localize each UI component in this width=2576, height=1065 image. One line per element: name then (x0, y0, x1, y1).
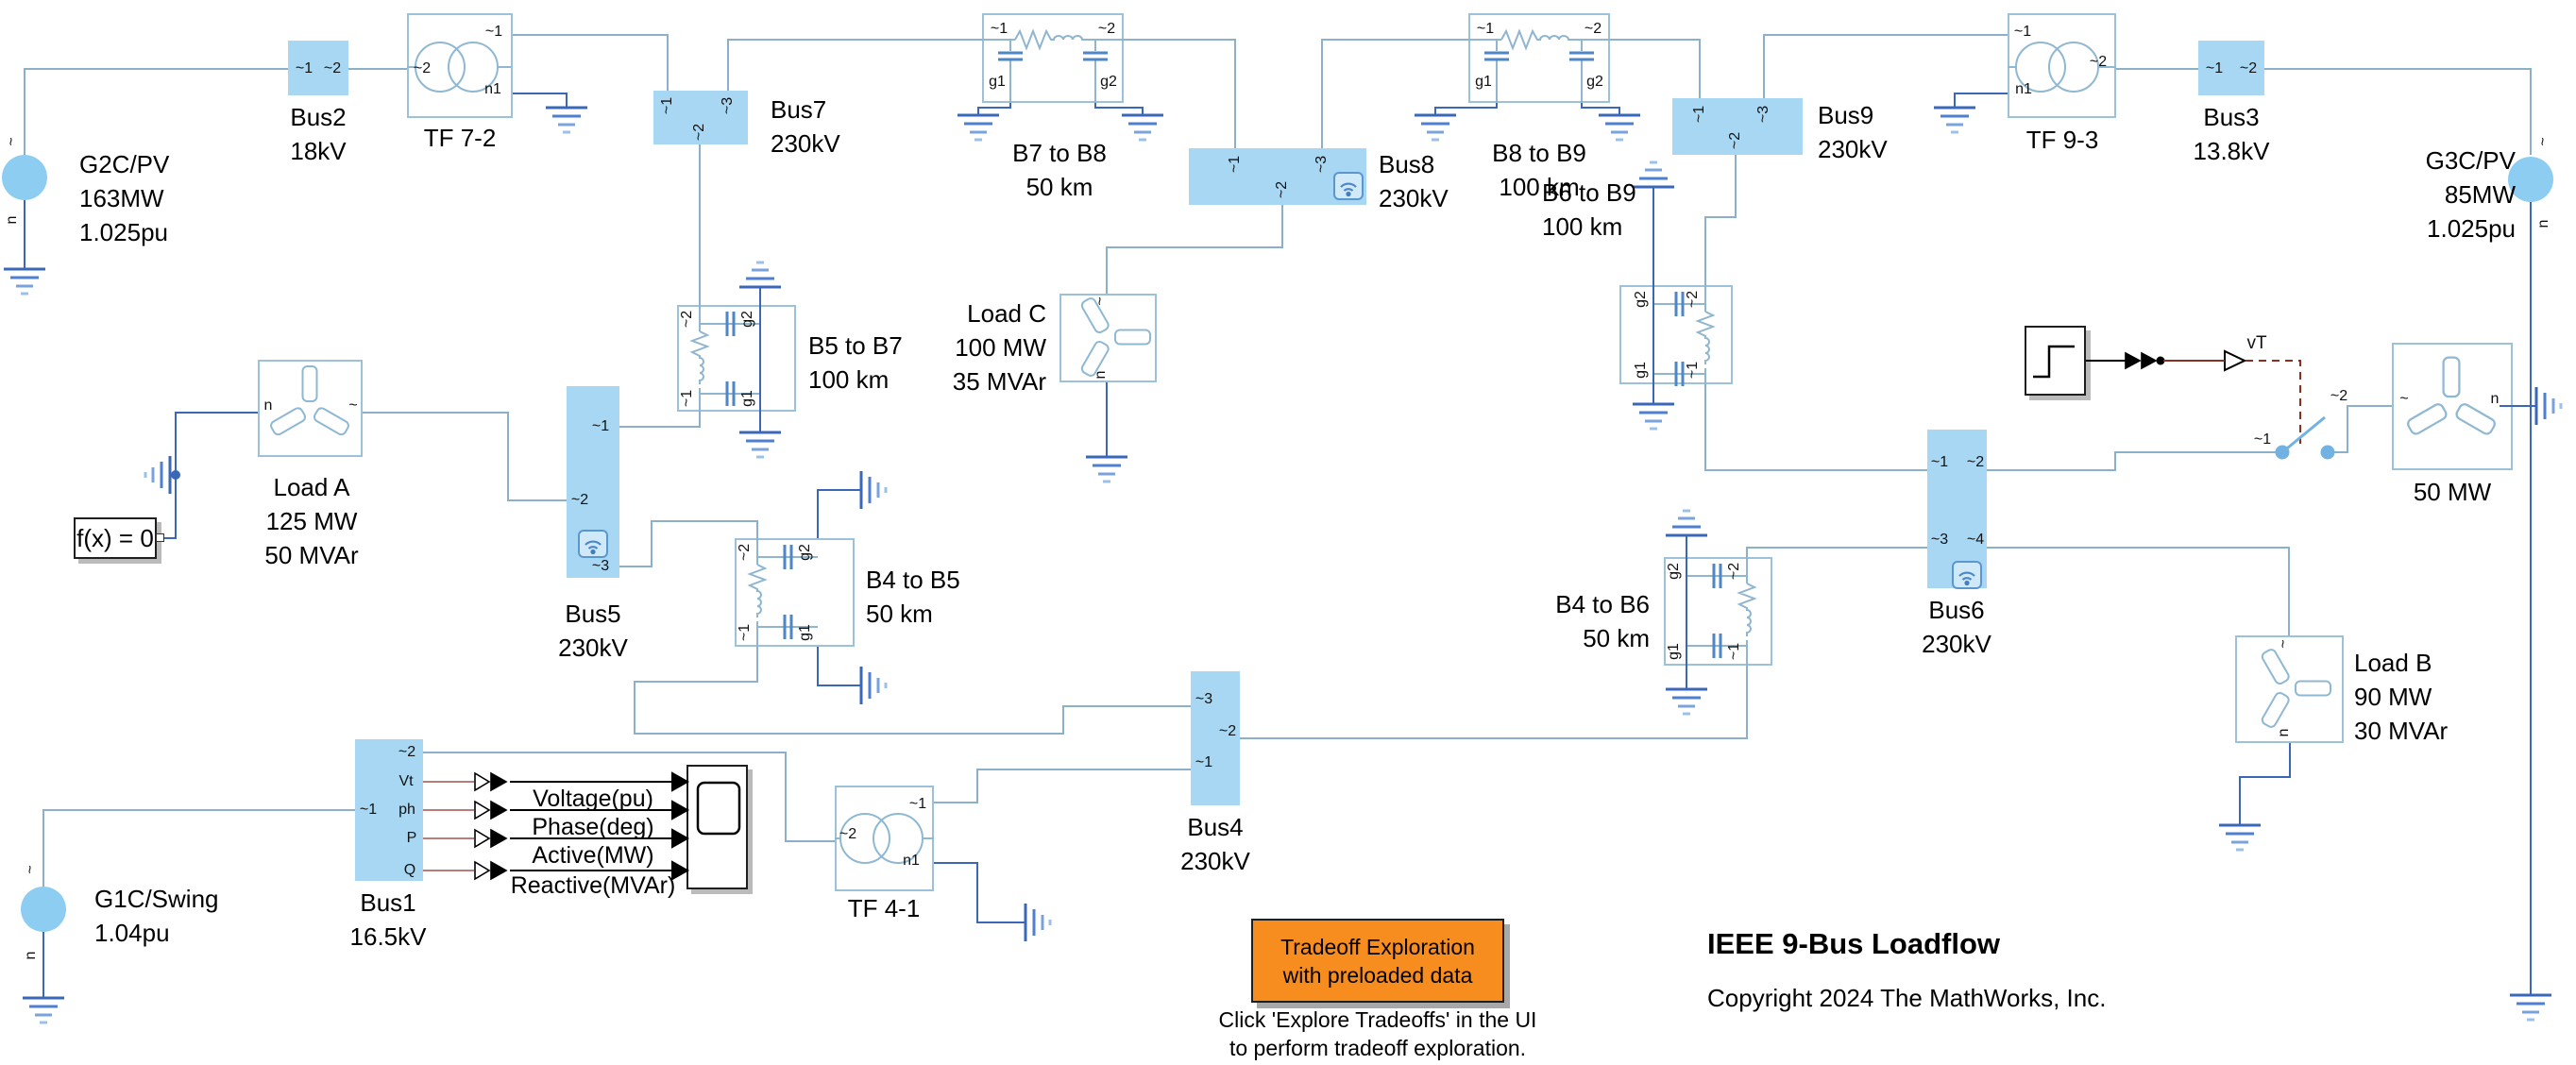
ground-icon (1599, 115, 1640, 140)
ground-icon (23, 998, 64, 1023)
b5b7-port-2: ~2 (679, 311, 696, 328)
tradeoff-note-line1: Click 'Explore Tradeoffs' in the UI (1219, 1006, 1537, 1034)
load-b-label: Load B90 MW30 MVAr (2354, 646, 2448, 748)
b8b9-port-2: ~2 (1585, 21, 1602, 38)
ground-icon (2219, 825, 2261, 850)
bus7-port-3: ~3 (720, 97, 737, 114)
switch-port-1: ~1 (2254, 431, 2271, 448)
b6b9-port-g2: g2 (1633, 291, 1650, 308)
g3c-label: G3C/PV85MW1.025pu (2327, 144, 2516, 245)
bus4-port-1: ~1 (1195, 754, 1212, 771)
b4b5-port-2: ~2 (737, 544, 754, 561)
bus2-port-1: ~1 (296, 60, 313, 77)
load-a-port-n: n (264, 397, 273, 414)
b7b8-label: B7 to B850 km (1012, 136, 1107, 204)
load-a-fan-icon (269, 366, 349, 436)
bus3-port-1: ~1 (2206, 60, 2223, 77)
ground-icon (2536, 387, 2561, 425)
load-b-port-ac: ~ (2276, 639, 2293, 648)
bus3-label: Bus313.8kV (2194, 100, 2270, 168)
ground-icon (145, 456, 170, 494)
b8b9-port-1: ~1 (1477, 21, 1494, 38)
ground-icon (1633, 404, 1674, 429)
tf72-port-n1: n1 (484, 81, 501, 98)
tf41-port-n1: n1 (903, 853, 920, 870)
junction-dot (171, 470, 180, 480)
bus6-port-1: ~1 (1931, 454, 1948, 471)
bus9-port-3: ~3 (1755, 106, 1772, 123)
signal-label-voltage: Voltage(pu) (533, 786, 653, 812)
ground-icon (739, 262, 781, 287)
ground-icon (546, 108, 587, 132)
signal-label-active: Active(MW) (532, 842, 653, 869)
signal-wires[interactable] (510, 361, 2126, 879)
ground-icon (739, 432, 781, 457)
bus4-label: Bus4230kV (1180, 810, 1250, 878)
bus4-port-3: ~3 (1195, 691, 1212, 708)
tf93-port-2: ~2 (2090, 54, 2107, 71)
bus8-wifi-icon (1334, 173, 1363, 199)
b5b7-port-g2: g2 (739, 311, 756, 328)
bus9-port-1: ~1 (1691, 106, 1708, 123)
bus6-port-3: ~3 (1931, 532, 1948, 549)
g1c-generator-icon (21, 887, 66, 932)
bus8-port-3: ~3 (1313, 156, 1330, 173)
bus1-port-p: P (407, 830, 417, 847)
ground-icon (861, 471, 886, 509)
load-50mw-label: 50 MW (2414, 475, 2491, 509)
g2c-label: G2C/PV163MW1.025pu (79, 147, 169, 249)
ground-icon (1666, 689, 1707, 714)
tradeoff-note-line2: to perform tradeoff exploration. (1229, 1035, 1526, 1062)
bus7-port-2: ~2 (691, 124, 708, 141)
load-c-port-n: n (1093, 371, 1110, 380)
bus1-port-ph: ph (398, 802, 415, 819)
b4b6-label: B4 to B650 km (1461, 587, 1650, 655)
b4b6-port-g2: g2 (1666, 563, 1683, 580)
load-a-port-ac: ~ (348, 397, 357, 414)
ground-icon (4, 269, 45, 294)
b7b8-port-2: ~2 (1098, 21, 1115, 38)
b4b6-port-g1: g1 (1666, 643, 1683, 660)
signal-label-reactive: Reactive(MVAr) (511, 872, 676, 899)
bus4-port-2: ~2 (1219, 723, 1236, 740)
g1c-port-ac: ~ (23, 865, 40, 873)
b4b5-label: B4 to B550 km (866, 563, 960, 631)
bus-measurement-icons (579, 173, 1981, 588)
bus6-label: Bus6230kV (1922, 593, 1991, 661)
load-b-fan-icon (2261, 648, 2330, 728)
simulink-model-canvas: f(x) = 0 Tradeoff Exploration with prelo… (0, 0, 2576, 1065)
load-c-port-ac: ~ (1093, 296, 1110, 305)
bus2-port-2: ~2 (324, 60, 341, 77)
b6b9-port-2: ~2 (1685, 291, 1702, 308)
bus8-port-1: ~1 (1227, 156, 1244, 173)
tf93-port-n1: n1 (2015, 81, 2032, 98)
bus1-label: Bus116.5kV (350, 886, 427, 954)
b7b8-port-1: ~1 (991, 21, 1008, 38)
ground-icon (1086, 457, 1127, 482)
tf41-port-2: ~2 (839, 826, 856, 843)
b4b6-port-2: ~2 (1726, 563, 1743, 580)
b4b5-port-g2: g2 (797, 544, 814, 561)
tf72-port-2: ~2 (414, 60, 431, 77)
load50-port-ac: ~ (2399, 391, 2408, 408)
b8b9-port-g2: g2 (1586, 74, 1603, 91)
tf93-port-1: ~1 (2014, 24, 2031, 41)
g2c-generator-icon (2, 155, 47, 200)
tf41-label: TF 4-1 (848, 891, 921, 925)
breaker-switch[interactable] (2276, 417, 2335, 460)
b4b6-port-1: ~1 (1726, 643, 1743, 660)
g2c-port-n: n (4, 216, 21, 225)
bus8-port-2: ~2 (1274, 181, 1291, 198)
load-50mw-fan-icon (2406, 358, 2497, 436)
bus1-port-vt: Vt (398, 773, 413, 790)
signal-label-phase: Phase(deg) (532, 814, 653, 840)
bus1-port-2: ~2 (398, 744, 415, 761)
bus6-port-4: ~4 (1967, 532, 1984, 549)
tf41-port-1: ~1 (909, 796, 926, 813)
load-a-label: Load A125 MW50 MVAr (264, 470, 358, 572)
ground-icon (1666, 511, 1707, 535)
load-b-port-n: n (2276, 729, 2293, 737)
load-c-label: Load C100 MW35 MVAr (857, 296, 1046, 398)
b7b8-port-g1: g1 (989, 74, 1006, 91)
bus5-port-3: ~3 (592, 558, 609, 575)
model-title: IEEE 9-Bus Loadflow (1707, 927, 2000, 961)
g2c-port-ac: ~ (4, 137, 21, 145)
bus3-port-2: ~2 (2240, 60, 2257, 77)
load50-port-n: n (2491, 391, 2500, 408)
bus5-port-1: ~1 (592, 418, 609, 435)
tf72-label: TF 7-2 (424, 121, 497, 155)
b6b9-port-g1: g1 (1633, 362, 1650, 379)
g3c-port-ac: ~ (2535, 137, 2552, 145)
b4b5-port-1: ~1 (737, 624, 754, 641)
bus7-port-1: ~1 (659, 97, 676, 114)
g3c-port-n: n (2535, 220, 2552, 228)
bus6-wifi-icon (1953, 562, 1981, 588)
ground-icon (2510, 995, 2551, 1020)
ground-icon (1633, 162, 1674, 187)
g1c-label: G1C/Swing1.04pu (94, 882, 219, 950)
bus2-label: Bus218kV (290, 100, 346, 168)
bus8-label: Bus8230kV (1379, 147, 1449, 215)
tf93-label: TF 9-3 (2026, 123, 2099, 157)
ground-icon (1415, 115, 1456, 140)
copyright-text: Copyright 2024 The MathWorks, Inc. (1707, 984, 2106, 1013)
tf72-port-1: ~1 (485, 24, 502, 41)
ground-icon (958, 115, 999, 140)
bus1-port-1: ~1 (360, 802, 377, 819)
bus5-wifi-icon (579, 531, 607, 557)
vt-signal-label: vT (2246, 333, 2266, 354)
g1c-port-n: n (23, 952, 40, 960)
scope-screen-icon (698, 783, 739, 834)
load-c-fan-icon (1080, 296, 1150, 377)
b5b7-port-g1: g1 (739, 390, 756, 407)
electrical-wires[interactable] (25, 93, 2536, 998)
b5b7-port-1: ~1 (679, 390, 696, 407)
bus6-port-2: ~2 (1967, 454, 1984, 471)
bus1-port-q: Q (404, 862, 415, 879)
bus7-label: Bus7230kV (771, 93, 840, 161)
bus9-port-2: ~2 (1727, 132, 1744, 149)
ground-icon (861, 667, 886, 704)
b7b8-port-g2: g2 (1100, 74, 1117, 91)
b6b9-port-1: ~1 (1685, 362, 1702, 379)
b8b9-port-g1: g1 (1475, 74, 1492, 91)
ground-icon (1934, 108, 1975, 132)
bus9-label: Bus9230kV (1818, 98, 1888, 166)
ground-icon (1025, 904, 1050, 941)
b6b9-label: B6 to B9100 km (1542, 176, 1636, 244)
bus5-label: Bus5230kV (558, 597, 628, 665)
step-icon (2033, 347, 2075, 377)
b4b5-port-g1: g1 (797, 624, 814, 641)
generator-icons[interactable] (2, 155, 2553, 932)
bus5-port-2: ~2 (571, 492, 588, 509)
switch-port-2: ~2 (2330, 388, 2347, 405)
physical-signal-wires[interactable] (423, 361, 2300, 871)
ground-icon (1122, 115, 1163, 140)
